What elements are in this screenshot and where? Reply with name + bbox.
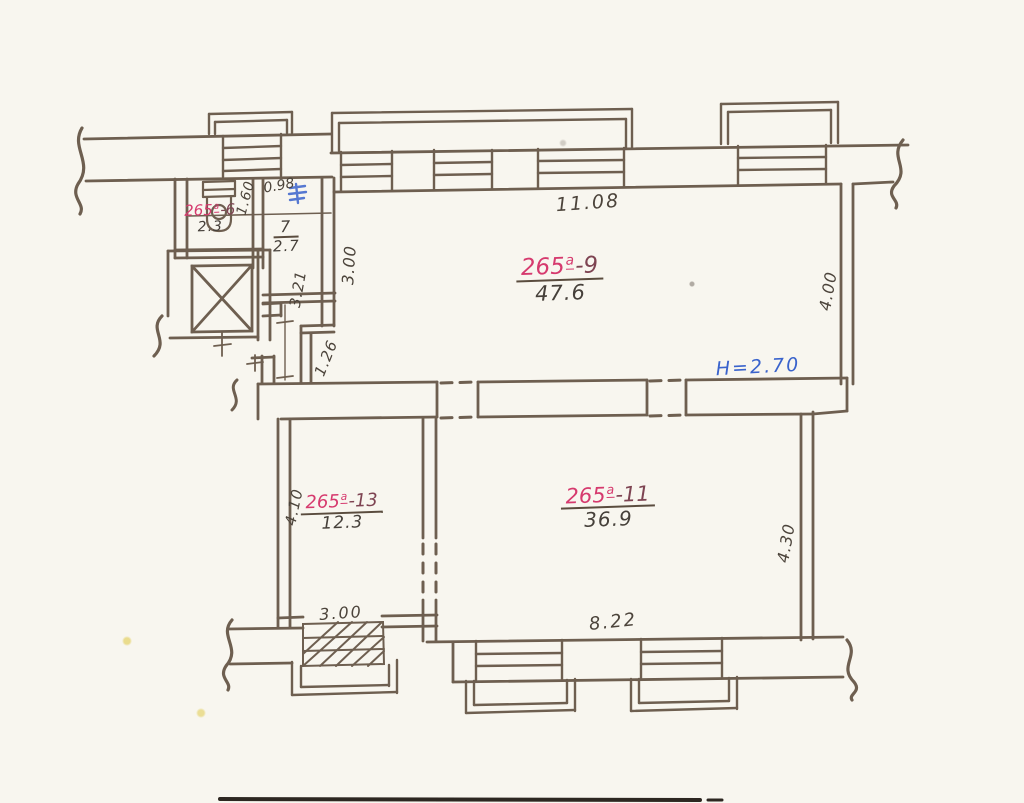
note-ceiling-height: H=2.70: [715, 354, 801, 380]
room-label-265a-9: 265a-9 47.6: [515, 252, 604, 306]
room-number: 265a-13: [300, 490, 383, 516]
dim-upper-left-niche: 3.00: [338, 245, 360, 286]
room-number: 265a-9: [515, 252, 603, 282]
floorplan-linework: [0, 0, 1024, 803]
scanned-floor-plan: 265a-6 2.3 7 2.7 265a-9 47.6 265a-11 36.…: [0, 0, 1024, 803]
dim-top-width: 11.08: [555, 190, 621, 216]
room-label-7: 7 2.7: [272, 217, 300, 257]
elevator-shaft-icon: [192, 265, 252, 332]
scan-edge-artifact: [220, 799, 722, 800]
room-label-265a-13: 265a-13 12.3: [300, 490, 384, 535]
room-label-265a-6: 265a-6 2.3: [179, 202, 241, 236]
room-area: 2.7: [273, 238, 300, 256]
room-label-265a-11: 265a-11 36.9: [560, 481, 656, 532]
room-area: 47.6: [516, 279, 604, 306]
room-number: 265a-6: [179, 202, 241, 220]
room-number: 265a-11: [560, 481, 655, 509]
room-area: 2.3: [179, 218, 241, 236]
dim-entrance-width: 3.00: [319, 602, 364, 624]
entrance-steps-hatch: [303, 622, 384, 666]
room-area: 12.3: [301, 512, 384, 534]
room-area: 36.9: [561, 506, 656, 532]
room-number: 7: [273, 218, 299, 239]
